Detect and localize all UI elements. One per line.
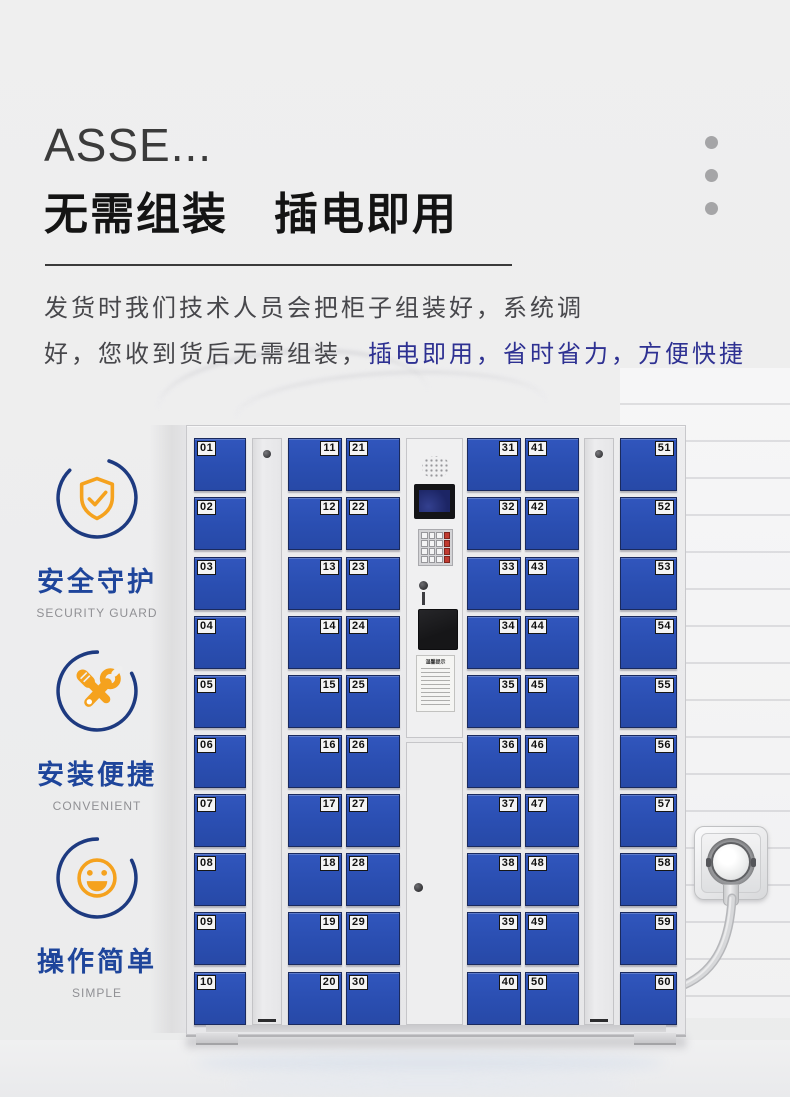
description-dark-text: 好，您收到货后无需组装， xyxy=(44,341,368,368)
divider-line xyxy=(45,264,512,266)
display-screen xyxy=(414,484,455,519)
locker-door: 51 xyxy=(620,438,677,491)
locker-door: 57 xyxy=(620,794,677,847)
locker-door: 10 xyxy=(194,972,246,1025)
locker-door-number: 25 xyxy=(349,678,368,693)
locker-door-number: 03 xyxy=(197,560,216,575)
keypad-key xyxy=(421,540,428,547)
keypad-key xyxy=(444,532,451,539)
keypad-key xyxy=(444,548,451,555)
feature-label: 安装便捷 xyxy=(8,753,186,792)
locker-door-number: 57 xyxy=(655,797,674,812)
keypad-key xyxy=(444,540,451,547)
lcd-display xyxy=(419,490,450,512)
smiley-icon xyxy=(54,835,140,921)
keypad-key xyxy=(421,548,428,555)
headline: 无需组装 插电即用 xyxy=(44,178,458,242)
locker-door-number: 18 xyxy=(320,856,339,871)
locker-door: 09 xyxy=(194,912,246,965)
locker-door-number: 36 xyxy=(499,738,518,753)
keypad-key xyxy=(429,532,436,539)
locker-door-number: 12 xyxy=(320,500,339,515)
locker-door-number: 41 xyxy=(528,441,547,456)
description-line-1: 发货时我们技术人员会把柜子组装好，系统调 xyxy=(44,288,584,323)
locker-door: 26 xyxy=(346,735,400,788)
locker-door: 58 xyxy=(620,853,677,906)
locker-door: 36 xyxy=(467,735,521,788)
locker-door: 23 xyxy=(346,557,400,610)
locker-door-number: 38 xyxy=(499,856,518,871)
locker-door-number: 56 xyxy=(655,738,674,753)
locker-door: 50 xyxy=(525,972,579,1025)
locker-door: 29 xyxy=(346,912,400,965)
locker-door-number: 21 xyxy=(349,441,368,456)
cabinet-foot xyxy=(196,1033,238,1045)
feature-sublabel: SIMPLE xyxy=(8,986,186,1000)
locker-door-number: 02 xyxy=(197,500,216,515)
locker-door: 49 xyxy=(525,912,579,965)
shield-check-icon xyxy=(54,455,140,541)
keypad-key xyxy=(436,532,443,539)
locker-door-number: 19 xyxy=(320,915,339,930)
locker-door-number: 16 xyxy=(320,738,339,753)
control-panel: 温馨提示 xyxy=(406,438,463,738)
locker-door-number: 54 xyxy=(655,619,674,634)
locker-door: 16 xyxy=(288,735,342,788)
cabinet-base xyxy=(206,1025,666,1032)
description-blue-text: 插电即用，省时省力，方便快捷 xyxy=(368,341,746,368)
socket-notch xyxy=(706,858,711,867)
locker-door-number: 44 xyxy=(528,619,547,634)
keypad-key xyxy=(444,556,451,563)
locker-door-number: 24 xyxy=(349,619,368,634)
locker-door: 31 xyxy=(467,438,521,491)
keypad-key xyxy=(429,540,436,547)
locker-door-number: 32 xyxy=(499,500,518,515)
keypad xyxy=(418,529,453,566)
locker-door-number: 35 xyxy=(499,678,518,693)
locker-door: 42 xyxy=(525,497,579,550)
locker-door-number: 37 xyxy=(499,797,518,812)
locker-door-number: 52 xyxy=(655,500,674,515)
locker-door-number: 04 xyxy=(197,619,216,634)
locker-door-number: 20 xyxy=(320,975,339,990)
keypad-key xyxy=(436,540,443,547)
locker-door-number: 15 xyxy=(320,678,339,693)
locker-door: 25 xyxy=(346,675,400,728)
locker-door: 56 xyxy=(620,735,677,788)
locker-door: 46 xyxy=(525,735,579,788)
locker-door: 47 xyxy=(525,794,579,847)
locker-door-number: 46 xyxy=(528,738,547,753)
locker-door: 38 xyxy=(467,853,521,906)
locker-side-strip xyxy=(584,438,614,1025)
floor-reflection xyxy=(195,1052,665,1074)
locker-door: 32 xyxy=(467,497,521,550)
keyhole-stem xyxy=(422,592,425,605)
locker-door: 28 xyxy=(346,853,400,906)
locker-door: 07 xyxy=(194,794,246,847)
lock-icon xyxy=(263,450,271,458)
description-line-2: 好，您收到货后无需组装，插电即用，省时省力，方便快捷 xyxy=(44,334,746,369)
locker-door: 44 xyxy=(525,616,579,669)
locker-door: 54 xyxy=(620,616,677,669)
locker-door: 13 xyxy=(288,557,342,610)
locker-door: 06 xyxy=(194,735,246,788)
locker-door-number: 49 xyxy=(528,915,547,930)
locker-door-number: 51 xyxy=(655,441,674,456)
locker-door-number: 59 xyxy=(655,915,674,930)
locker-door-number: 11 xyxy=(320,441,339,456)
locker-door-number: 29 xyxy=(349,915,368,930)
locker-door-number: 09 xyxy=(197,915,216,930)
feature-label: 操作简单 xyxy=(8,940,186,979)
locker-door: 41 xyxy=(525,438,579,491)
locker-door: 55 xyxy=(620,675,677,728)
locker-door-number: 23 xyxy=(349,560,368,575)
locker-door: 05 xyxy=(194,675,246,728)
locker-door-number: 43 xyxy=(528,560,547,575)
locker-door: 30 xyxy=(346,972,400,1025)
locker-door-number: 50 xyxy=(528,975,547,990)
locker-door: 18 xyxy=(288,853,342,906)
locker-door: 53 xyxy=(620,557,677,610)
locker-door: 52 xyxy=(620,497,677,550)
speaker-grille-icon xyxy=(422,456,449,478)
locker-side-strip xyxy=(252,438,282,1025)
locker-door: 48 xyxy=(525,853,579,906)
keypad-key xyxy=(429,548,436,555)
locker-door: 15 xyxy=(288,675,342,728)
lock-icon xyxy=(595,450,603,458)
instruction-sticker: 温馨提示 xyxy=(416,655,455,712)
locker-door-number: 22 xyxy=(349,500,368,515)
locker-door-number: 26 xyxy=(349,738,368,753)
locker-door-number: 10 xyxy=(197,975,216,990)
locker-door-number: 01 xyxy=(197,441,216,456)
locker-door-number: 58 xyxy=(655,856,674,871)
locker-door: 21 xyxy=(346,438,400,491)
locker-door-number: 55 xyxy=(655,678,674,693)
scanner-screen xyxy=(418,609,458,650)
decor-dot xyxy=(705,202,718,215)
promo-page: ASSE... 无需组装 插电即用 发货时我们技术人员会把柜子组装好，系统调 好… xyxy=(0,0,790,1097)
keyhole-icon xyxy=(419,581,428,590)
locker-door: 60 xyxy=(620,972,677,1025)
feature-security: 安全守护 SECURITY GUARD xyxy=(8,455,186,620)
locker-door: 12 xyxy=(288,497,342,550)
locker-door: 22 xyxy=(346,497,400,550)
feature-simple: 操作简单 SIMPLE xyxy=(8,835,186,1000)
locker-door: 08 xyxy=(194,853,246,906)
locker-door: 45 xyxy=(525,675,579,728)
locker-door: 33 xyxy=(467,557,521,610)
socket-notch xyxy=(751,858,756,867)
locker-door: 59 xyxy=(620,912,677,965)
locker-door-number: 07 xyxy=(197,797,216,812)
locker-door-number: 53 xyxy=(655,560,674,575)
locker-door: 20 xyxy=(288,972,342,1025)
locker-door-number: 14 xyxy=(320,619,339,634)
locker-door: 35 xyxy=(467,675,521,728)
locker-cabinet: 温馨提示 01020304050607080910111213141516171… xyxy=(186,425,686,1037)
locker-door: 39 xyxy=(467,912,521,965)
maintenance-door xyxy=(406,742,463,1025)
locker-door: 03 xyxy=(194,557,246,610)
tools-icon xyxy=(54,648,140,734)
feature-sublabel: SECURITY GUARD xyxy=(8,606,186,620)
locker-door-number: 28 xyxy=(349,856,368,871)
keypad-key xyxy=(429,556,436,563)
feature-label: 安全守护 xyxy=(8,560,186,599)
locker-door: 24 xyxy=(346,616,400,669)
keypad-key xyxy=(421,532,428,539)
locker-door-number: 30 xyxy=(349,975,368,990)
locker-door: 43 xyxy=(525,557,579,610)
locker-door-number: 08 xyxy=(197,856,216,871)
sticker-text-lines xyxy=(421,668,450,707)
feature-installation: 安装便捷 CONVENIENT xyxy=(8,648,186,813)
locker-door-number: 34 xyxy=(499,619,518,634)
cabinet-foot xyxy=(634,1033,676,1045)
locker-door: 14 xyxy=(288,616,342,669)
decor-dot xyxy=(705,169,718,182)
feature-sublabel: CONVENIENT xyxy=(8,799,186,813)
locker-door-number: 06 xyxy=(197,738,216,753)
locker-door-number: 42 xyxy=(528,500,547,515)
locker-door-number: 33 xyxy=(499,560,518,575)
floor-reflection xyxy=(230,1076,630,1092)
locker-door: 11 xyxy=(288,438,342,491)
keypad-key xyxy=(436,556,443,563)
locker-door: 37 xyxy=(467,794,521,847)
locker-door: 04 xyxy=(194,616,246,669)
locker-door: 01 xyxy=(194,438,246,491)
locker-door-number: 27 xyxy=(349,797,368,812)
page-title: ASSE... xyxy=(44,118,212,172)
locker-door-number: 40 xyxy=(499,975,518,990)
locker-door: 40 xyxy=(467,972,521,1025)
sticker-title: 温馨提示 xyxy=(425,658,445,665)
keypad-key xyxy=(436,548,443,555)
locker-door: 27 xyxy=(346,794,400,847)
locker-door-number: 45 xyxy=(528,678,547,693)
locker-door-number: 48 xyxy=(528,856,547,871)
locker-door-number: 60 xyxy=(655,975,674,990)
locker-door: 02 xyxy=(194,497,246,550)
locker-door: 17 xyxy=(288,794,342,847)
locker-door-number: 39 xyxy=(499,915,518,930)
locker-door-number: 13 xyxy=(320,560,339,575)
keyhole-icon xyxy=(414,883,423,892)
locker-door-number: 47 xyxy=(528,797,547,812)
cabinet-shadow xyxy=(186,1036,686,1048)
decor-dot xyxy=(705,136,718,149)
locker-door: 19 xyxy=(288,912,342,965)
locker-door-number: 17 xyxy=(320,797,339,812)
keypad-key xyxy=(421,556,428,563)
locker-door: 34 xyxy=(467,616,521,669)
locker-door-number: 05 xyxy=(197,678,216,693)
locker-door-number: 31 xyxy=(499,441,518,456)
power-plug xyxy=(711,842,751,882)
